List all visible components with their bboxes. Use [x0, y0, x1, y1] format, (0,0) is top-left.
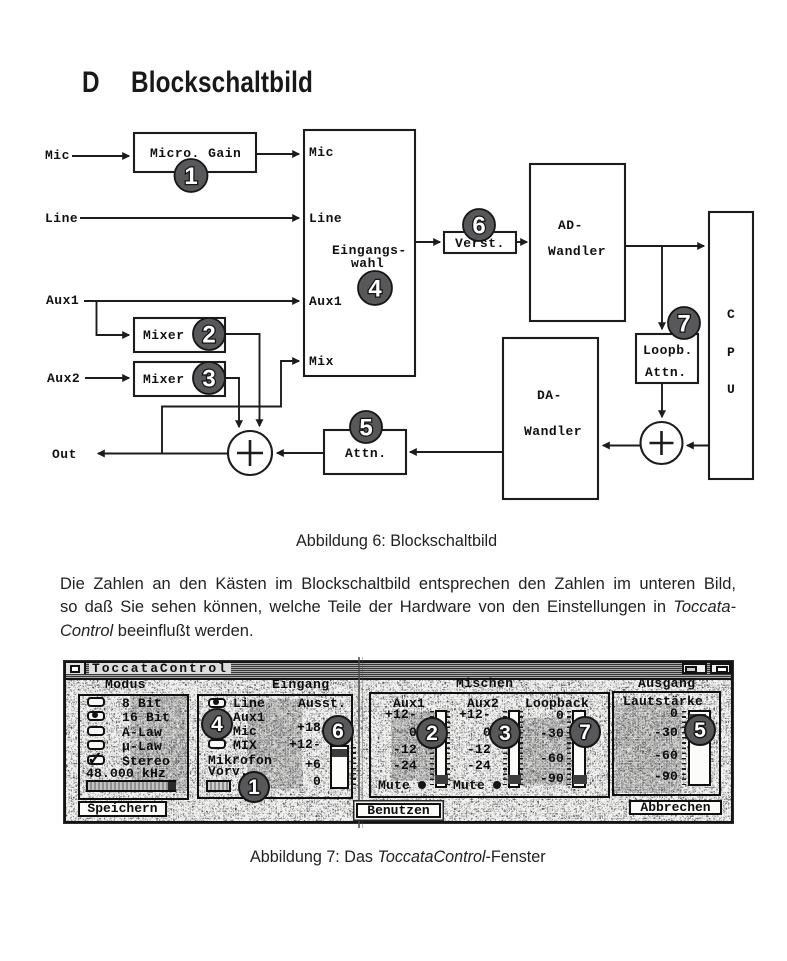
svg-text:5: 5 — [359, 415, 372, 442]
svg-text:Mic: Mic — [45, 148, 70, 163]
svg-text:Attn.: Attn. — [645, 365, 687, 380]
svg-text:Loopb.: Loopb. — [643, 343, 693, 358]
svg-text:4: 4 — [368, 276, 382, 303]
svg-text:C: C — [727, 307, 735, 322]
svg-text:Line: Line — [309, 211, 342, 226]
svg-text:3: 3 — [202, 366, 215, 393]
svg-text:Line: Line — [45, 211, 78, 226]
svg-text:7: 7 — [677, 311, 690, 338]
svg-text:Out: Out — [52, 447, 77, 462]
svg-text:Wandler: Wandler — [548, 244, 606, 259]
svg-text:DA-: DA- — [537, 388, 562, 403]
svg-text:Wandler: Wandler — [524, 424, 582, 439]
svg-text:wahl: wahl — [351, 256, 384, 271]
svg-text:Attn.: Attn. — [345, 446, 387, 461]
svg-text:U: U — [727, 382, 735, 397]
svg-text:Aux1: Aux1 — [309, 294, 342, 309]
svg-text:Mixer: Mixer — [143, 328, 185, 343]
svg-text:Mixer: Mixer — [143, 372, 185, 387]
svg-text:1: 1 — [184, 163, 197, 190]
svg-text:P: P — [727, 345, 735, 360]
svg-text:Aux2: Aux2 — [47, 371, 80, 386]
svg-text:6: 6 — [472, 213, 485, 240]
svg-text:2: 2 — [202, 322, 215, 349]
svg-text:Mix: Mix — [309, 354, 334, 369]
svg-text:AD-: AD- — [558, 218, 583, 233]
svg-text:Mic: Mic — [309, 145, 334, 160]
svg-text:Aux1: Aux1 — [46, 293, 79, 308]
